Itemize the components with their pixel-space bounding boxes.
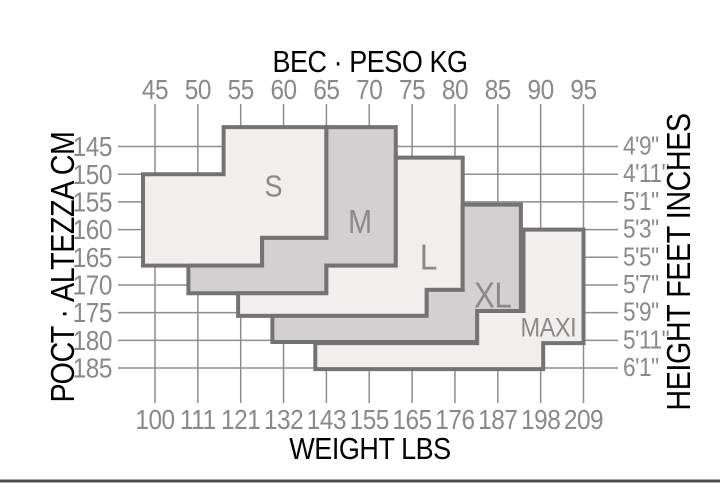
bottom-axis-title: WEIGHT LBS xyxy=(289,432,451,466)
feet-tick-label-5'5": 5'5" xyxy=(623,243,659,272)
lbs-tick-label-165: 165 xyxy=(392,403,431,435)
lbs-tick-label-187: 187 xyxy=(478,403,517,435)
kg-tick-label-50: 50 xyxy=(185,73,211,105)
right-axis-title: HEIGHT FEET INCHES xyxy=(660,113,697,410)
top-axis-title: ВЕС · PESO KG xyxy=(272,45,467,79)
lbs-tick-label-100: 100 xyxy=(135,403,174,435)
feet-tick-label-4'9": 4'9" xyxy=(623,132,659,161)
region-label-l: L xyxy=(420,238,437,279)
size-chart: SMLXLMAXI 455055606570758085909514515015… xyxy=(0,0,720,488)
lbs-tick-label-111: 111 xyxy=(180,403,216,435)
feet-tick-label-5'7": 5'7" xyxy=(623,271,659,300)
lbs-tick-label-121: 121 xyxy=(221,403,260,435)
region-label-m: M xyxy=(348,203,371,240)
feet-tick-label-5'3": 5'3" xyxy=(623,215,659,244)
region-label-s: S xyxy=(264,170,282,204)
lbs-tick-label-176: 176 xyxy=(435,403,474,435)
region-label-maxi: MAXI xyxy=(521,313,577,343)
kg-tick-label-90: 90 xyxy=(528,73,554,105)
kg-tick-label-55: 55 xyxy=(228,73,254,105)
lbs-tick-label-209: 209 xyxy=(564,403,603,435)
lbs-tick-label-132: 132 xyxy=(264,403,303,435)
feet-tick-label-5'9": 5'9" xyxy=(623,298,659,327)
size-chart-page: SMLXLMAXI 455055606570758085909514515015… xyxy=(0,0,720,488)
kg-tick-label-95: 95 xyxy=(570,73,596,105)
lbs-tick-label-143: 143 xyxy=(307,403,346,435)
feet-tick-label-5'1": 5'1" xyxy=(623,187,659,216)
left-axis-title: РОСТ · ALTEZZA CM xyxy=(44,131,81,402)
feet-tick-label-6'1": 6'1" xyxy=(623,354,659,383)
lbs-tick-label-155: 155 xyxy=(350,403,389,435)
kg-tick-label-85: 85 xyxy=(485,73,511,105)
kg-tick-label-45: 45 xyxy=(142,73,168,105)
lbs-tick-label-198: 198 xyxy=(521,403,560,435)
